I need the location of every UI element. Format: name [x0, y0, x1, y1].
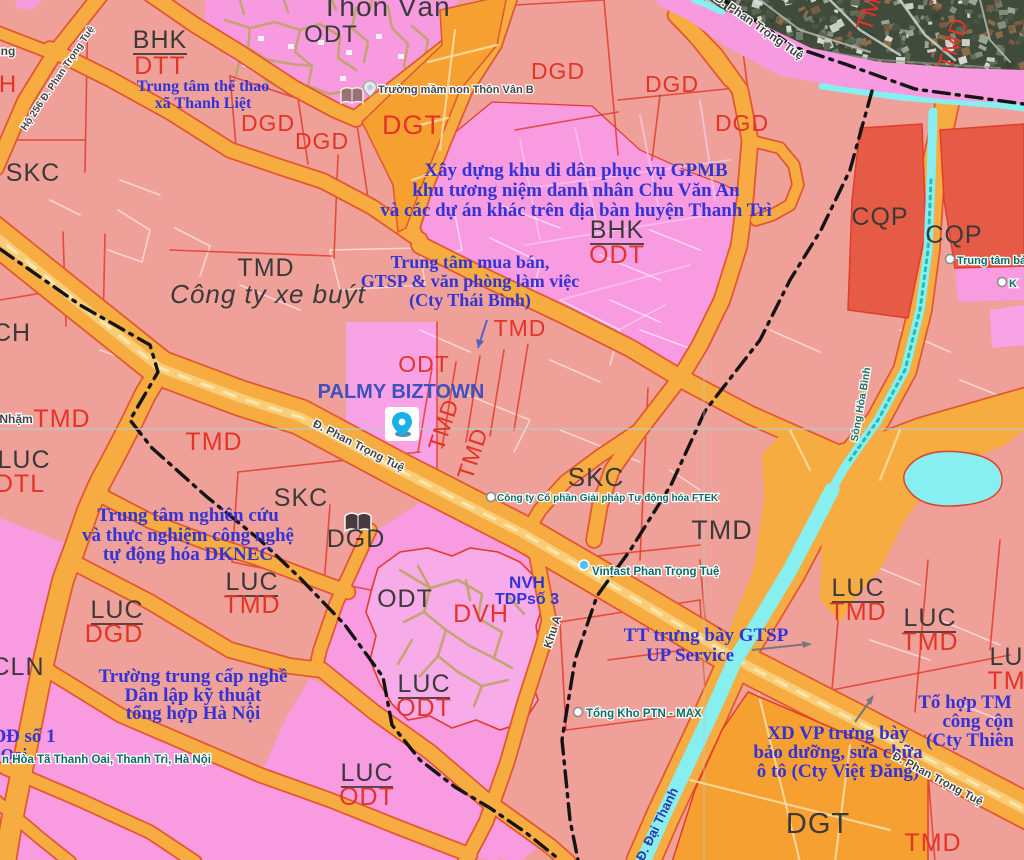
svg-text:Trường trung cấp nghề: Trường trung cấp nghề [99, 666, 288, 687]
svg-text:tổng hợp Hà Nội: tổng hợp Hà Nội [126, 703, 261, 724]
svg-text:DGT: DGT [786, 808, 850, 840]
svg-text:(Cty Thái Bình): (Cty Thái Bình) [409, 290, 531, 311]
svg-text:Trung tâm mua bán,: Trung tâm mua bán, [391, 252, 550, 272]
svg-text:Tổng Kho PTN - MAX: Tổng Kho PTN - MAX [586, 708, 702, 720]
svg-text:SKC: SKC [568, 462, 624, 492]
svg-text:K: K [1009, 278, 1017, 290]
svg-text:GTSP & văn phòng làm việc: GTSP & văn phòng làm việc [361, 271, 580, 291]
svg-text:ĐĐ số 1: ĐĐ số 1 [0, 726, 56, 747]
svg-text:Trung tâm nghiên cứu: Trung tâm nghiên cứu [97, 505, 279, 526]
svg-text:DGD: DGD [645, 71, 699, 97]
svg-text:TMD: TMD [237, 254, 294, 282]
svg-text:TMD: TMD [691, 515, 752, 545]
svg-text:DGD: DGD [715, 110, 769, 136]
svg-text:Trung tâm thể thao: Trung tâm thể thao [137, 78, 270, 95]
svg-text:tự động hóa DKNEC: tự động hóa DKNEC [103, 544, 273, 565]
svg-text:TMD: TMD [901, 628, 958, 656]
svg-text:Tổ hợp TM: Tổ hợp TM [918, 692, 1012, 713]
svg-text:Trung tâm bảo: Trung tâm bảo [957, 255, 1024, 267]
svg-text:DTT: DTT [134, 52, 186, 80]
svg-text:SKC: SKC [6, 159, 60, 187]
svg-text:ODT: ODT [589, 241, 645, 269]
svg-text:ODT: ODT [377, 585, 433, 613]
svg-text:ng: ng [1, 44, 16, 58]
svg-text:TMD: TMD [494, 315, 547, 341]
svg-text:n Hòa Tã Thanh Oai, Thanh Trì,: n Hòa Tã Thanh Oai, Thanh Trì, Hà Nội [2, 754, 211, 766]
svg-text:ODT: ODT [398, 351, 450, 377]
svg-text:ODT: ODT [304, 21, 358, 48]
svg-text:DGT: DGT [382, 110, 442, 140]
svg-text:PALMY BIZTOWN: PALMY BIZTOWN [318, 381, 485, 403]
svg-text:TMD: TMD [185, 428, 242, 456]
svg-text:DGD: DGD [241, 110, 295, 136]
svg-text:XD VP trưng bày: XD VP trưng bày [767, 723, 909, 744]
svg-text:BHK: BHK [590, 216, 644, 244]
svg-text:ODT: ODT [396, 694, 452, 722]
svg-text:DGD: DGD [327, 525, 386, 553]
svg-text:TMD: TMD [223, 591, 280, 619]
svg-text:TT trưng bày GTSP: TT trưng bày GTSP [624, 625, 789, 646]
svg-text:Trường mầm non Thôn Vân B: Trường mầm non Thôn Vân B [378, 84, 534, 96]
svg-text:Vinfast Phan Trọng Tuệ: Vinfast Phan Trọng Tuệ [592, 566, 719, 578]
svg-text:DGD: DGD [295, 128, 349, 154]
svg-text:H: H [0, 71, 17, 98]
svg-text:TMD: TMD [33, 405, 90, 433]
svg-text:DGD: DGD [85, 620, 144, 648]
svg-text:Công ty xe buýt: Công ty xe buýt [170, 279, 366, 309]
svg-text:Công ty Cổ phần Giải pháp Tự đ: Công ty Cổ phần Giải pháp Tự động hóa FT… [497, 492, 719, 504]
svg-text:NVH: NVH [509, 573, 545, 592]
svg-text:ODT: ODT [339, 783, 395, 811]
svg-text:và thực nghiệm công nghệ: và thực nghiệm công nghệ [82, 525, 294, 546]
svg-text:ô tô (Cty Việt Đăng): ô tô (Cty Việt Đăng) [757, 761, 920, 782]
svg-text:CH: CH [0, 319, 31, 347]
svg-text:xã Thanh Liệt: xã Thanh Liệt [155, 95, 252, 112]
svg-text:DVH: DVH [453, 600, 509, 628]
svg-text:UP Service: UP Service [646, 645, 734, 666]
svg-text:CLN: CLN [0, 653, 45, 681]
svg-text:DGD: DGD [531, 58, 585, 84]
svg-text:CQP: CQP [851, 203, 908, 231]
svg-text:(Cty Thiên: (Cty Thiên [926, 730, 1014, 751]
svg-text:SKC: SKC [274, 484, 328, 512]
svg-text:DTL: DTL [0, 470, 45, 498]
svg-text:TMD: TMD [829, 598, 886, 626]
svg-text:CQP: CQP [925, 221, 982, 249]
svg-text:TMD: TMD [987, 667, 1024, 695]
svg-text:TMD: TMD [904, 829, 961, 857]
svg-text:và các dự án khác trên địa bàn: và các dự án khác trên địa bàn huyện Tha… [380, 200, 772, 221]
svg-text:Xây dựng khu di dân phục vụ GP: Xây dựng khu di dân phục vụ GPMB [424, 160, 728, 181]
svg-text:BHK: BHK [133, 26, 187, 54]
svg-text:công cộn: công cộn [942, 711, 1014, 732]
svg-text:khu tương niệm danh nhân Chu V: khu tương niệm danh nhân Chu Văn An [412, 180, 740, 201]
svg-text:Thôn Vân: Thôn Vân [321, 0, 450, 22]
svg-text:Nhặm: Nhặm [0, 412, 33, 426]
